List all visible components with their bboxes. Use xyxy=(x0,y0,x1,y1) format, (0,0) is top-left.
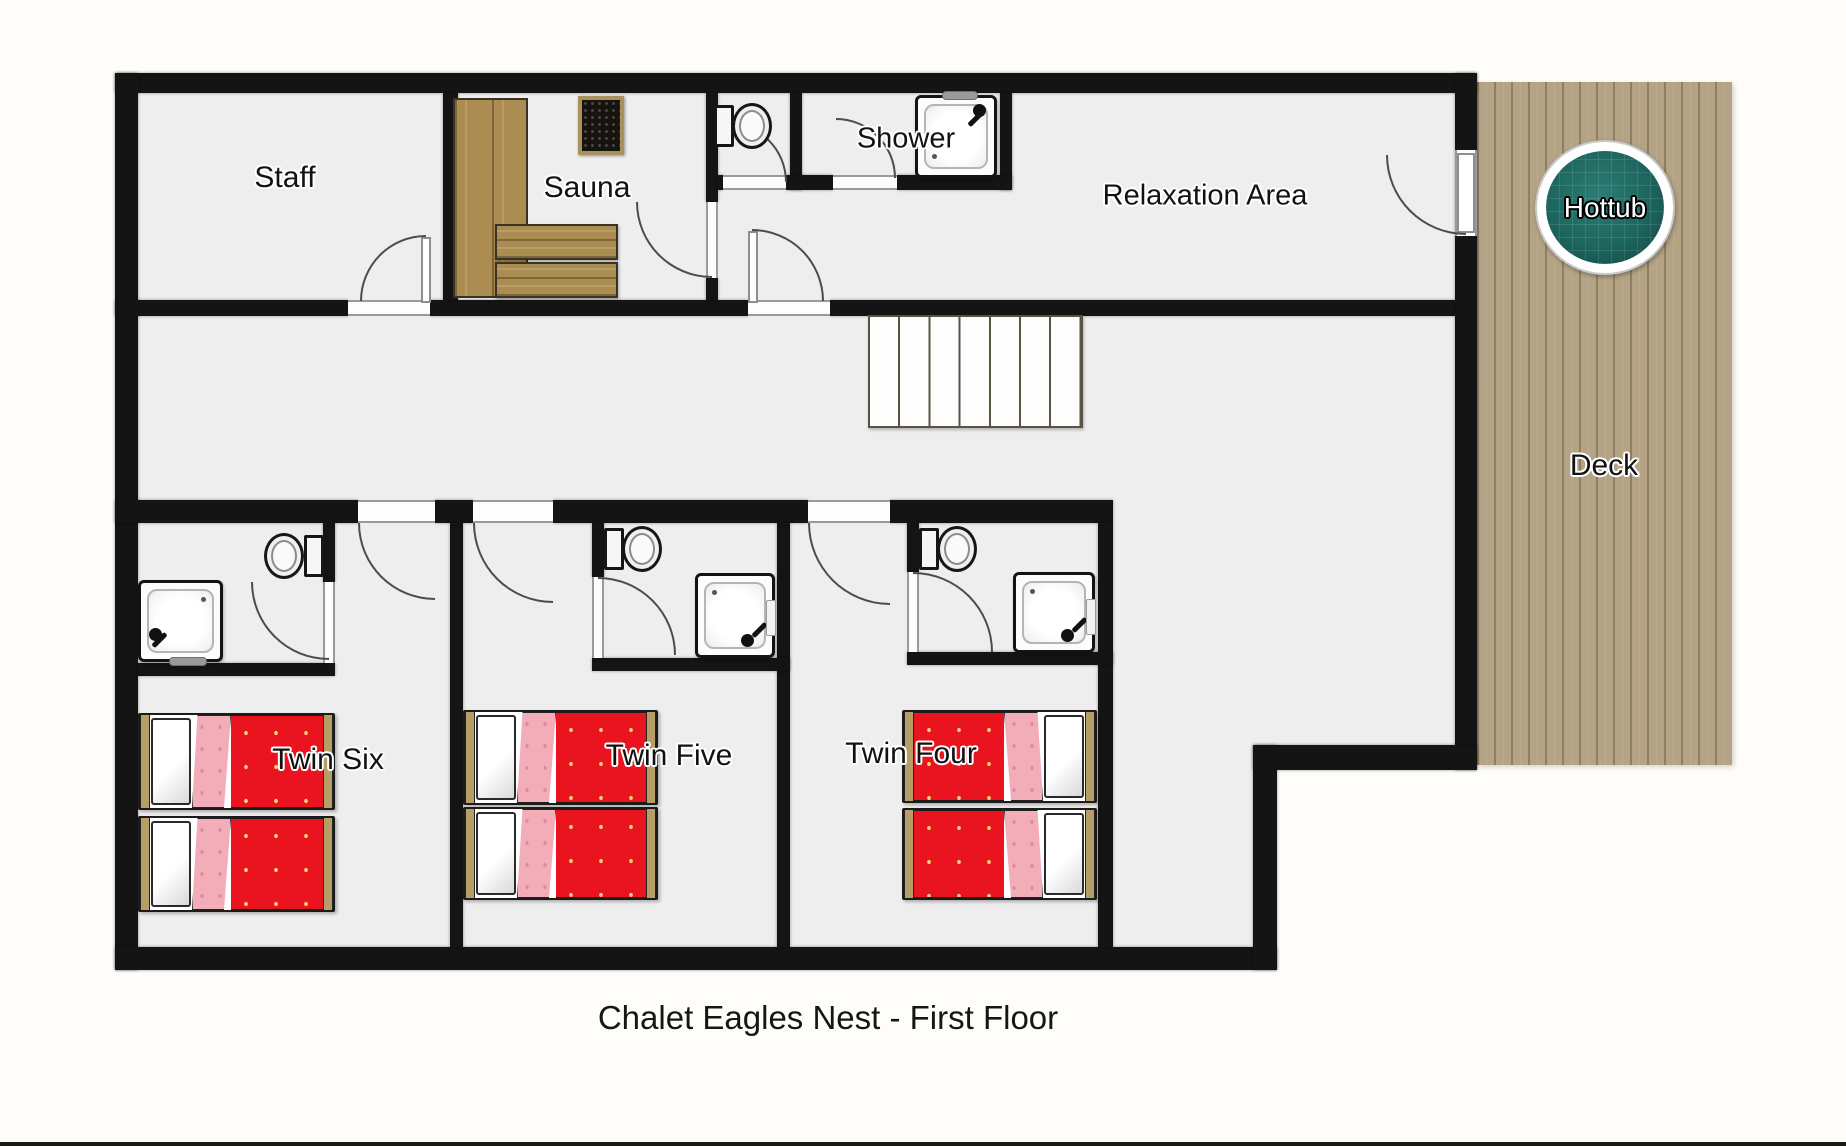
twin4-door-opening xyxy=(808,500,890,523)
shower-tray-icon xyxy=(138,580,223,662)
bed xyxy=(138,816,335,912)
toilet-cistern xyxy=(919,528,939,570)
staff-door-opening xyxy=(348,300,430,316)
wall-ensuite4-left xyxy=(907,523,919,572)
room-label-staff: Staff xyxy=(254,161,315,195)
wall-wc-bottom xyxy=(786,175,833,190)
wall-twin6-twin5 xyxy=(450,523,463,947)
shower-tray-icon xyxy=(1013,572,1095,653)
toilet-bowl xyxy=(264,533,304,579)
wall-ensuite5-bottom xyxy=(592,658,790,671)
twin5-door-opening xyxy=(473,500,553,523)
toilet-icon xyxy=(604,526,664,572)
shower-tray-icon xyxy=(695,573,775,658)
wall-bedrooms-top xyxy=(890,500,1113,523)
wall-bedrooms-top xyxy=(435,500,473,523)
toilet-cistern xyxy=(304,535,324,577)
deck-label: Deck xyxy=(1570,449,1638,483)
page-title: Chalet Eagles Nest - First Floor xyxy=(598,999,1058,1037)
staircase xyxy=(868,315,1083,428)
room-label-twin-five: Twin Five xyxy=(606,739,733,773)
exterior-notch xyxy=(1277,770,1487,985)
wall-sauna-right-lower xyxy=(706,278,718,300)
toilet-cistern xyxy=(604,528,624,570)
twin6-door-opening xyxy=(358,500,435,523)
wall-twin4-right xyxy=(1098,523,1113,947)
sauna-bench xyxy=(495,262,618,298)
wall-ensuite5-left xyxy=(592,523,604,577)
wall-bottom xyxy=(115,947,1277,970)
room-label-twin-four: Twin Four xyxy=(845,737,977,771)
bed xyxy=(902,808,1097,900)
hottub-label: Hottub xyxy=(1564,192,1647,224)
wall-top xyxy=(115,73,1477,93)
wall-ensuite6-right xyxy=(323,523,335,582)
toilet-icon xyxy=(714,103,774,149)
room-label-twin-six: Twin Six xyxy=(272,743,384,777)
wall-twin5-twin4 xyxy=(777,523,790,947)
room-label-shower: Shower xyxy=(857,123,955,156)
wall-notch-vertical xyxy=(1253,745,1277,970)
wall-ensuite6-bottom xyxy=(138,663,335,676)
toilet-cistern xyxy=(714,105,734,147)
toilet-bowl xyxy=(732,103,772,149)
wall-mid-segment xyxy=(115,300,348,316)
wall-bedrooms-top xyxy=(115,500,358,523)
hottub: Hottub xyxy=(1535,140,1675,275)
corridor-door-opening xyxy=(748,300,830,316)
toilet-bowl xyxy=(937,526,977,572)
sauna-heater-icon xyxy=(578,96,624,155)
room-label-relaxation: Relaxation Area xyxy=(1103,180,1308,213)
wall-notch-horizontal xyxy=(1253,745,1477,770)
wall-ensuite4-bottom xyxy=(907,652,1113,665)
toilet-bowl xyxy=(622,526,662,572)
floorplan-canvas: Hottub xyxy=(0,0,1846,1147)
wall-mid-segment xyxy=(430,300,748,316)
sauna-bench xyxy=(495,224,618,260)
room-label-sauna: Sauna xyxy=(544,171,631,205)
bottom-border-line xyxy=(0,1142,1846,1146)
toilet-icon xyxy=(919,526,979,572)
toilet-icon xyxy=(264,533,324,579)
wall-bedrooms-top xyxy=(553,500,808,523)
bed xyxy=(463,807,658,900)
wall-mid-segment xyxy=(830,300,1455,316)
